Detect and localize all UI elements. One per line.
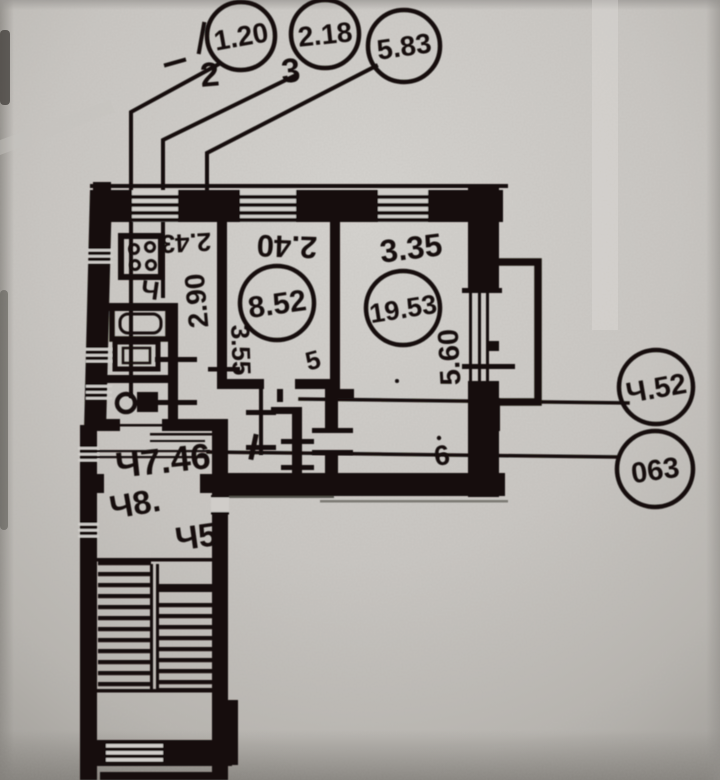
svg-text:2.43: 2.43 [160,227,212,260]
svg-text:2.90: 2.90 [179,272,215,329]
svg-text:Ч5: Ч5 [173,515,219,557]
svg-text:5.60: 5.60 [433,328,468,386]
svg-text:2.40: 2.40 [256,228,318,265]
svg-text:2.18: 2.18 [296,16,353,53]
svg-text:3.35: 3.35 [378,226,444,269]
svg-text:063: 063 [629,452,681,490]
svg-text:3: 3 [280,51,302,91]
